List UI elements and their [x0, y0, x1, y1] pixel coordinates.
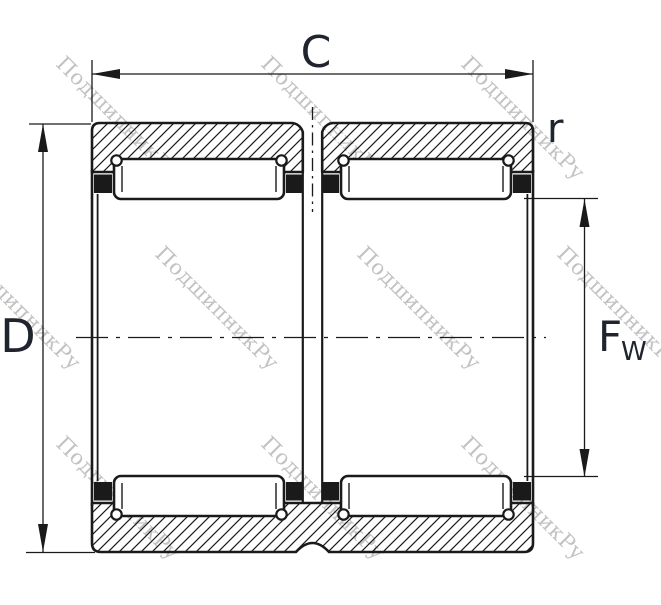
- cage-block: [513, 175, 531, 194]
- dim-C-arrow-left: [92, 69, 120, 79]
- roller-lip-circle: [503, 155, 513, 165]
- dim-Fw-arrow-top: [580, 199, 590, 227]
- needle-roller: [341, 476, 511, 516]
- drawing-canvas: ПодшипникРу ПодшипникРу ПодшипникРу Подш…: [0, 0, 661, 605]
- dimension-Fw: F W: [524, 199, 647, 478]
- dim-D-arrow-bottom: [38, 524, 48, 552]
- bearing-cross-section-drawing: ПодшипникРу ПодшипникРу ПодшипникРу Подш…: [0, 0, 661, 605]
- needle-roller: [341, 159, 511, 199]
- label-outer-diameter: D: [0, 309, 35, 363]
- cage-block: [286, 482, 302, 501]
- label-outer-width: C: [301, 27, 332, 78]
- roller-lip-circle: [276, 509, 286, 519]
- roller-lip-circle: [338, 509, 348, 519]
- cage-block: [323, 482, 339, 501]
- label-bore-diameter-subscript: W: [621, 337, 647, 367]
- watermark-text: ПодшипникРу: [352, 242, 485, 375]
- roller-lip-circle: [338, 155, 348, 165]
- roller-lip-circle: [111, 155, 121, 165]
- dim-Fw-arrow-bottom: [580, 449, 590, 477]
- roller-lip-circle: [276, 155, 286, 165]
- watermark-text: ПодшипникРу: [150, 242, 283, 375]
- dim-D-arrow-top: [38, 124, 48, 152]
- cage-block: [323, 175, 339, 194]
- needle-roller: [114, 159, 284, 199]
- roller-lip-circle: [111, 509, 121, 519]
- cage-block: [513, 482, 531, 501]
- label-bore-diameter: F: [598, 312, 622, 361]
- dim-C-arrow-right: [505, 69, 533, 79]
- needle-roller: [114, 476, 284, 516]
- cage-block: [94, 482, 112, 501]
- cage-block: [286, 175, 302, 194]
- cage-block: [94, 175, 112, 194]
- roller-lip-circle: [503, 509, 513, 519]
- label-corner-radius: r: [547, 106, 564, 152]
